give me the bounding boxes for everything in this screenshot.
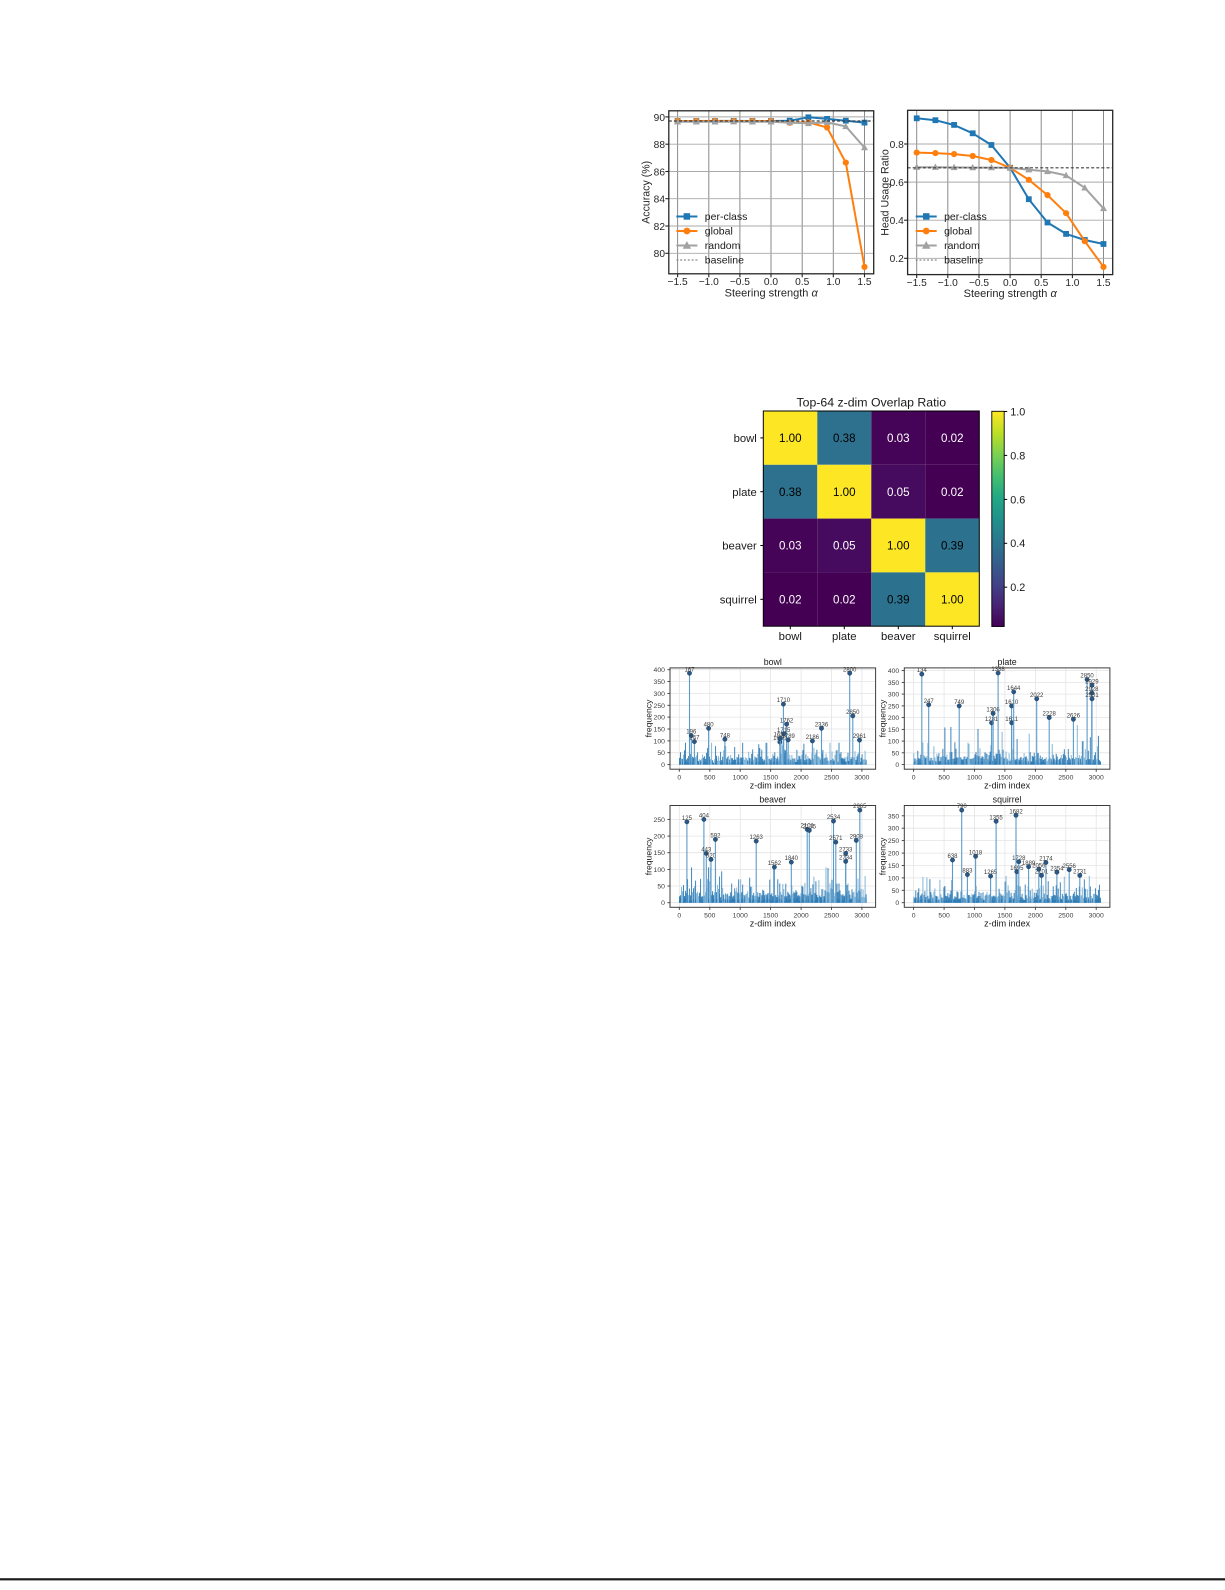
svg-text:3000: 3000 xyxy=(854,912,869,919)
svg-text:1715: 1715 xyxy=(777,728,791,734)
svg-text:Top-64 z-dim Overlap Ratio: Top-64 z-dim Overlap Ratio xyxy=(796,395,946,409)
svg-text:404: 404 xyxy=(699,814,710,820)
svg-text:2101: 2101 xyxy=(1035,870,1049,876)
svg-text:z-dim index: z-dim index xyxy=(984,919,1031,929)
svg-text:0.38: 0.38 xyxy=(779,486,802,499)
svg-text:0.03: 0.03 xyxy=(887,432,910,445)
svg-text:−1.0: −1.0 xyxy=(938,278,958,289)
svg-text:125: 125 xyxy=(682,816,693,822)
svg-text:baseline: baseline xyxy=(705,255,744,267)
svg-text:2733: 2733 xyxy=(839,848,853,854)
svg-text:beaver: beaver xyxy=(881,631,916,643)
svg-text:200: 200 xyxy=(888,851,900,858)
svg-text:1.5: 1.5 xyxy=(857,277,871,288)
svg-text:global: global xyxy=(944,226,972,238)
svg-text:2626: 2626 xyxy=(1067,713,1081,719)
svg-text:global: global xyxy=(705,226,733,238)
svg-text:0.02: 0.02 xyxy=(941,486,964,499)
svg-text:0: 0 xyxy=(661,900,665,907)
svg-text:100: 100 xyxy=(654,738,666,745)
svg-text:2929: 2929 xyxy=(1085,679,1099,685)
svg-text:1710: 1710 xyxy=(777,698,791,704)
svg-text:500: 500 xyxy=(704,912,716,919)
svg-text:z-dim index: z-dim index xyxy=(750,919,797,929)
svg-text:1789: 1789 xyxy=(782,734,796,740)
svg-text:Steering strength α: Steering strength α xyxy=(964,288,1058,300)
svg-text:1682: 1682 xyxy=(1009,809,1023,815)
svg-text:0.02: 0.02 xyxy=(941,432,964,445)
svg-text:1.00: 1.00 xyxy=(779,432,802,445)
svg-text:592: 592 xyxy=(710,834,721,840)
svg-text:0: 0 xyxy=(677,774,681,781)
svg-text:2228: 2228 xyxy=(1043,712,1057,718)
svg-text:2734: 2734 xyxy=(839,856,853,862)
svg-text:1000: 1000 xyxy=(967,774,982,781)
svg-text:1.00: 1.00 xyxy=(887,540,910,553)
svg-text:squirrel: squirrel xyxy=(720,595,757,607)
svg-text:1.0: 1.0 xyxy=(1010,406,1025,418)
svg-text:82: 82 xyxy=(654,222,666,233)
svg-text:50: 50 xyxy=(657,750,665,757)
svg-text:0.05: 0.05 xyxy=(833,540,856,553)
svg-text:beaver: beaver xyxy=(759,794,786,804)
svg-text:1263: 1263 xyxy=(750,835,764,841)
svg-text:plate: plate xyxy=(732,487,757,499)
svg-text:50: 50 xyxy=(892,750,900,757)
svg-text:2000: 2000 xyxy=(1028,912,1043,919)
svg-text:200: 200 xyxy=(888,715,900,722)
svg-text:400: 400 xyxy=(654,667,666,674)
svg-text:84: 84 xyxy=(654,195,666,206)
svg-text:2961: 2961 xyxy=(853,734,867,740)
svg-text:1355: 1355 xyxy=(989,815,1003,821)
svg-text:0.6: 0.6 xyxy=(890,178,904,189)
svg-text:1000: 1000 xyxy=(733,912,748,919)
svg-text:50: 50 xyxy=(657,884,665,891)
svg-text:2500: 2500 xyxy=(824,912,839,919)
svg-text:frequency: frequency xyxy=(878,699,888,737)
svg-text:1610: 1610 xyxy=(1005,700,1019,706)
svg-text:z-dim index: z-dim index xyxy=(750,781,797,791)
svg-text:150: 150 xyxy=(888,863,900,870)
svg-text:350: 350 xyxy=(888,680,900,687)
svg-text:100: 100 xyxy=(888,739,900,746)
svg-text:0.39: 0.39 xyxy=(941,540,964,553)
svg-text:300: 300 xyxy=(888,826,900,833)
svg-text:2000: 2000 xyxy=(1028,774,1043,781)
svg-text:0.8: 0.8 xyxy=(890,140,904,151)
svg-text:2135: 2135 xyxy=(803,825,817,831)
svg-text:2731: 2731 xyxy=(1073,870,1087,876)
svg-text:100: 100 xyxy=(654,867,666,874)
svg-text:squirrel: squirrel xyxy=(934,631,971,643)
svg-text:1.00: 1.00 xyxy=(941,593,964,606)
svg-text:883: 883 xyxy=(962,869,973,875)
svg-text:2174: 2174 xyxy=(1039,857,1053,863)
svg-text:2500: 2500 xyxy=(1058,774,1073,781)
svg-text:2000: 2000 xyxy=(794,774,809,781)
svg-text:frequency: frequency xyxy=(878,837,888,875)
svg-text:1.0: 1.0 xyxy=(1065,278,1079,289)
svg-text:2186: 2186 xyxy=(806,735,820,741)
svg-text:z-dim index: z-dim index xyxy=(984,781,1031,791)
svg-text:Accuracy (%): Accuracy (%) xyxy=(640,161,652,224)
svg-text:134: 134 xyxy=(917,668,928,674)
svg-text:beaver: beaver xyxy=(722,541,757,553)
svg-text:0: 0 xyxy=(912,774,916,781)
svg-text:1611: 1611 xyxy=(1005,717,1019,723)
svg-text:−1.5: −1.5 xyxy=(668,277,688,288)
svg-text:1.0: 1.0 xyxy=(826,277,840,288)
svg-text:0.38: 0.38 xyxy=(833,432,856,445)
svg-text:3000: 3000 xyxy=(854,774,869,781)
svg-text:bowl: bowl xyxy=(764,657,782,667)
svg-text:0.02: 0.02 xyxy=(833,593,856,606)
svg-text:0.03: 0.03 xyxy=(779,540,802,553)
svg-text:bowl: bowl xyxy=(734,433,757,445)
svg-text:random: random xyxy=(705,240,741,252)
svg-text:150: 150 xyxy=(654,850,666,857)
svg-text:2908: 2908 xyxy=(850,835,864,841)
svg-text:per-class: per-class xyxy=(705,211,748,223)
svg-text:247: 247 xyxy=(689,736,700,742)
svg-text:0: 0 xyxy=(677,912,681,919)
svg-text:88: 88 xyxy=(654,140,666,151)
svg-text:300: 300 xyxy=(654,691,666,698)
svg-text:0.8: 0.8 xyxy=(1010,450,1025,462)
svg-text:748: 748 xyxy=(720,733,731,739)
svg-text:1000: 1000 xyxy=(967,912,982,919)
svg-text:3000: 3000 xyxy=(1089,774,1104,781)
svg-text:2500: 2500 xyxy=(824,774,839,781)
svg-text:0: 0 xyxy=(895,762,899,769)
svg-text:500: 500 xyxy=(704,774,716,781)
svg-text:0: 0 xyxy=(661,762,665,769)
svg-text:0: 0 xyxy=(895,900,899,907)
svg-text:0.4: 0.4 xyxy=(890,216,904,227)
svg-text:86: 86 xyxy=(654,167,666,178)
svg-text:300: 300 xyxy=(888,692,900,699)
svg-text:2000: 2000 xyxy=(794,912,809,919)
svg-text:2056: 2056 xyxy=(1032,863,1046,869)
svg-text:1644: 1644 xyxy=(1007,686,1021,692)
svg-text:1000: 1000 xyxy=(733,774,748,781)
svg-text:0: 0 xyxy=(912,912,916,919)
svg-text:−1.5: −1.5 xyxy=(907,278,927,289)
svg-text:3000: 3000 xyxy=(1089,912,1104,919)
svg-text:250: 250 xyxy=(654,703,666,710)
svg-text:frequency: frequency xyxy=(643,699,653,737)
svg-text:350: 350 xyxy=(654,679,666,686)
svg-text:plate: plate xyxy=(998,657,1017,667)
svg-text:frequency: frequency xyxy=(643,837,653,875)
svg-text:50: 50 xyxy=(892,888,900,895)
svg-text:random: random xyxy=(944,240,980,252)
svg-text:2500: 2500 xyxy=(1058,912,1073,919)
svg-text:2336: 2336 xyxy=(815,722,829,728)
svg-text:0.4: 0.4 xyxy=(1010,538,1025,550)
svg-text:80: 80 xyxy=(654,249,666,260)
svg-text:plate: plate xyxy=(832,631,857,643)
svg-text:Head Usage Ratio: Head Usage Ratio xyxy=(879,149,891,236)
svg-text:100: 100 xyxy=(888,875,900,882)
svg-text:500: 500 xyxy=(938,912,950,919)
svg-text:200: 200 xyxy=(654,715,666,722)
svg-text:−1.0: −1.0 xyxy=(699,277,719,288)
svg-text:1840: 1840 xyxy=(785,856,799,862)
svg-text:247: 247 xyxy=(924,699,935,705)
svg-text:1.00: 1.00 xyxy=(833,486,856,499)
svg-text:1762: 1762 xyxy=(780,718,794,724)
svg-text:250: 250 xyxy=(654,817,666,824)
svg-text:1018: 1018 xyxy=(969,850,983,856)
svg-text:1281: 1281 xyxy=(985,717,999,723)
svg-text:638: 638 xyxy=(947,854,958,860)
svg-text:150: 150 xyxy=(654,727,666,734)
svg-text:bowl: bowl xyxy=(779,631,802,643)
svg-text:150: 150 xyxy=(888,727,900,734)
svg-text:90: 90 xyxy=(654,113,666,124)
svg-text:0.02: 0.02 xyxy=(779,593,802,606)
svg-text:749: 749 xyxy=(954,700,965,706)
svg-text:2022: 2022 xyxy=(1030,693,1044,699)
svg-text:per-class: per-class xyxy=(944,211,987,223)
svg-text:baseline: baseline xyxy=(944,255,983,267)
svg-text:1.5: 1.5 xyxy=(1096,278,1110,289)
svg-text:0.6: 0.6 xyxy=(1010,494,1025,506)
svg-text:250: 250 xyxy=(888,838,900,845)
svg-text:2850: 2850 xyxy=(846,710,860,716)
svg-text:480: 480 xyxy=(704,722,715,728)
svg-text:0.2: 0.2 xyxy=(890,254,904,265)
svg-text:350: 350 xyxy=(888,813,900,820)
svg-text:1562: 1562 xyxy=(768,861,782,867)
svg-text:0.2: 0.2 xyxy=(1010,582,1025,594)
svg-text:500: 500 xyxy=(938,774,950,781)
svg-text:0.39: 0.39 xyxy=(887,593,910,606)
svg-text:400: 400 xyxy=(888,668,900,675)
svg-text:0.05: 0.05 xyxy=(887,486,910,499)
svg-text:250: 250 xyxy=(888,703,900,710)
svg-text:200: 200 xyxy=(654,834,666,841)
svg-text:2931: 2931 xyxy=(1085,693,1099,699)
svg-text:Steering strength α: Steering strength α xyxy=(725,287,819,299)
svg-text:squirrel: squirrel xyxy=(993,794,1022,804)
svg-text:2571: 2571 xyxy=(829,836,843,842)
svg-text:2534: 2534 xyxy=(827,815,841,821)
